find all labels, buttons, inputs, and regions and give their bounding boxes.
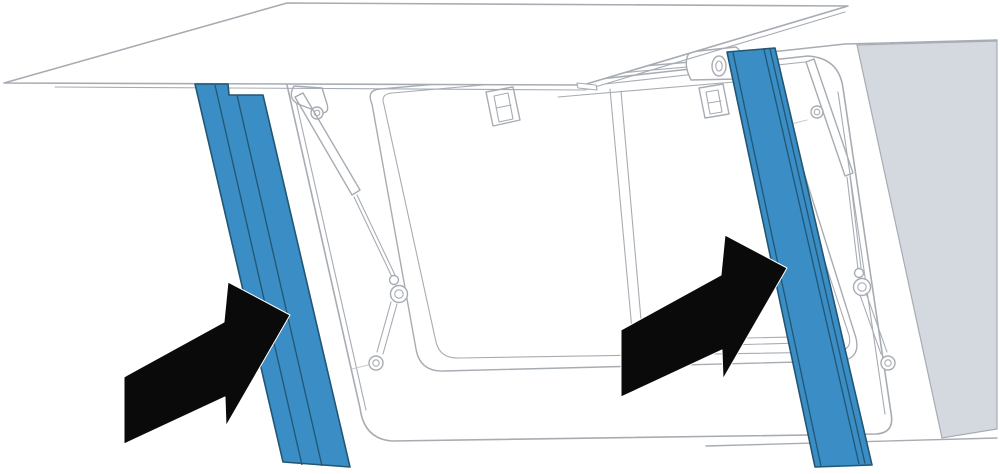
latch-right (699, 84, 729, 118)
installation-diagram (0, 0, 1000, 474)
strut-right-rod-cap (855, 269, 864, 278)
trim-strip-left-face (195, 84, 350, 467)
strut-right-arm (860, 293, 887, 354)
strut-right-ball (854, 279, 871, 296)
insertion-arrows (124, 235, 787, 444)
screw-tick-right (791, 120, 807, 124)
strut-left-rod (354, 195, 395, 277)
screw-bottom-right (881, 356, 895, 370)
side-panel (857, 41, 997, 438)
flap-door-corner-cap (577, 83, 597, 90)
strut-left-rod-cap (390, 276, 399, 285)
strut-left-arm (377, 302, 397, 354)
screw-bottom-left (369, 356, 383, 370)
strut-right-rod (847, 176, 861, 269)
arrow-right (621, 235, 787, 397)
trim-strip-left (195, 84, 350, 467)
strut-left-ball (391, 286, 408, 303)
hinge-pivot-right (712, 56, 726, 76)
illustration-canvas (0, 0, 1000, 474)
screw-tick-left (352, 365, 368, 369)
strut-right-cylinder (806, 59, 853, 176)
latch-left (486, 87, 520, 126)
